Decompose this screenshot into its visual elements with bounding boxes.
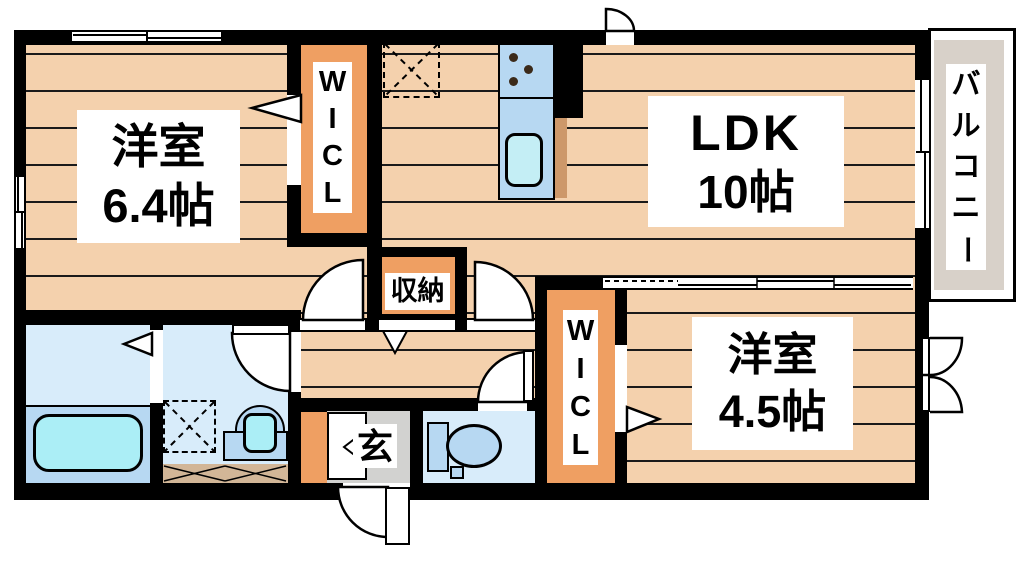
room-label-wicl-top: W I C L: [313, 62, 352, 213]
toilet-doorway: [478, 398, 527, 411]
room-name: 洋室: [112, 118, 206, 177]
wall-corridor-bottom: [301, 398, 478, 411]
room-size: 4.5帖: [719, 384, 827, 440]
toilet-door-leaf: [523, 350, 534, 402]
washroom-door-opening: [288, 332, 301, 392]
bathroom-floor: [26, 325, 150, 405]
vanity-sink-bowl: [243, 413, 277, 453]
wall-spine: [367, 45, 382, 320]
wicl-top-door-opening: [287, 95, 301, 185]
wall-left: [14, 30, 26, 500]
kitchen-sink-bowl: [505, 133, 543, 187]
washroom-floor-hatch: [163, 464, 288, 483]
casement-sash-bottom: [930, 377, 962, 412]
room-label-balcony: バ ル コ ニ ー: [946, 64, 986, 270]
washroom-door-leaf: [232, 324, 290, 335]
window-left-sliding: [14, 175, 26, 250]
balcony-sliding-door: [915, 78, 929, 230]
room-label-wicl-bottom: W I C L: [563, 310, 598, 465]
floor-plan: 洋室 6.4帖 LDK 10帖 洋室 4.5帖 収納 玄 W I C L W I…: [0, 0, 1020, 563]
room-name: 玄: [357, 424, 393, 469]
room-label-ldk: LDK 10帖: [648, 96, 844, 227]
entrance-shoe-counter: [301, 410, 327, 483]
door-swing-service: [606, 9, 634, 31]
wall-stub-wicl-bottom: [535, 318, 547, 332]
corridor-threshold-band: [300, 318, 545, 332]
kitchen-counter-edge: [555, 117, 567, 198]
bath-door-opening: [150, 330, 163, 403]
room-name: LDK: [690, 102, 802, 165]
wall-bottom: [14, 483, 929, 500]
room-name: 収納: [391, 275, 445, 309]
stove-burner-icon: [524, 65, 533, 74]
bathtub: [33, 414, 143, 472]
room-name: 洋室: [727, 327, 817, 383]
refrigerator-space: [383, 42, 440, 98]
sliding-partition-ldk-bedroom: [603, 276, 913, 290]
wall-ldk-bottom: [535, 276, 605, 290]
kitchen-column-wall: [555, 42, 583, 118]
wall-stub-storage: [455, 318, 467, 332]
service-door-top: [606, 31, 634, 45]
washing-machine-space: [163, 400, 216, 453]
wicl-bottom-door-opening: [615, 345, 627, 432]
room-label-storage: 収納: [385, 273, 450, 310]
toilet-bowl: [446, 424, 502, 468]
entrance-door-leaf: [385, 487, 410, 545]
casement-window: [921, 337, 930, 412]
casement-sash-top: [930, 338, 962, 375]
wall-stub-spine: [365, 318, 379, 332]
room-label-bedroom2: 洋室 4.5帖: [692, 317, 853, 450]
wall-bath-top: [14, 310, 301, 325]
stove-burner-icon: [509, 77, 518, 86]
stove-burner-icon: [509, 53, 518, 62]
room-label-entrance: 玄: [353, 424, 397, 468]
room-label-bedroom1: 洋室 6.4帖: [77, 110, 240, 243]
toilet-flush-handle: [450, 466, 464, 479]
window-top-sliding: [70, 30, 223, 43]
room-size: 10帖: [697, 164, 794, 222]
room-size: 6.4帖: [102, 177, 214, 236]
wall-toilet-left: [410, 398, 423, 483]
